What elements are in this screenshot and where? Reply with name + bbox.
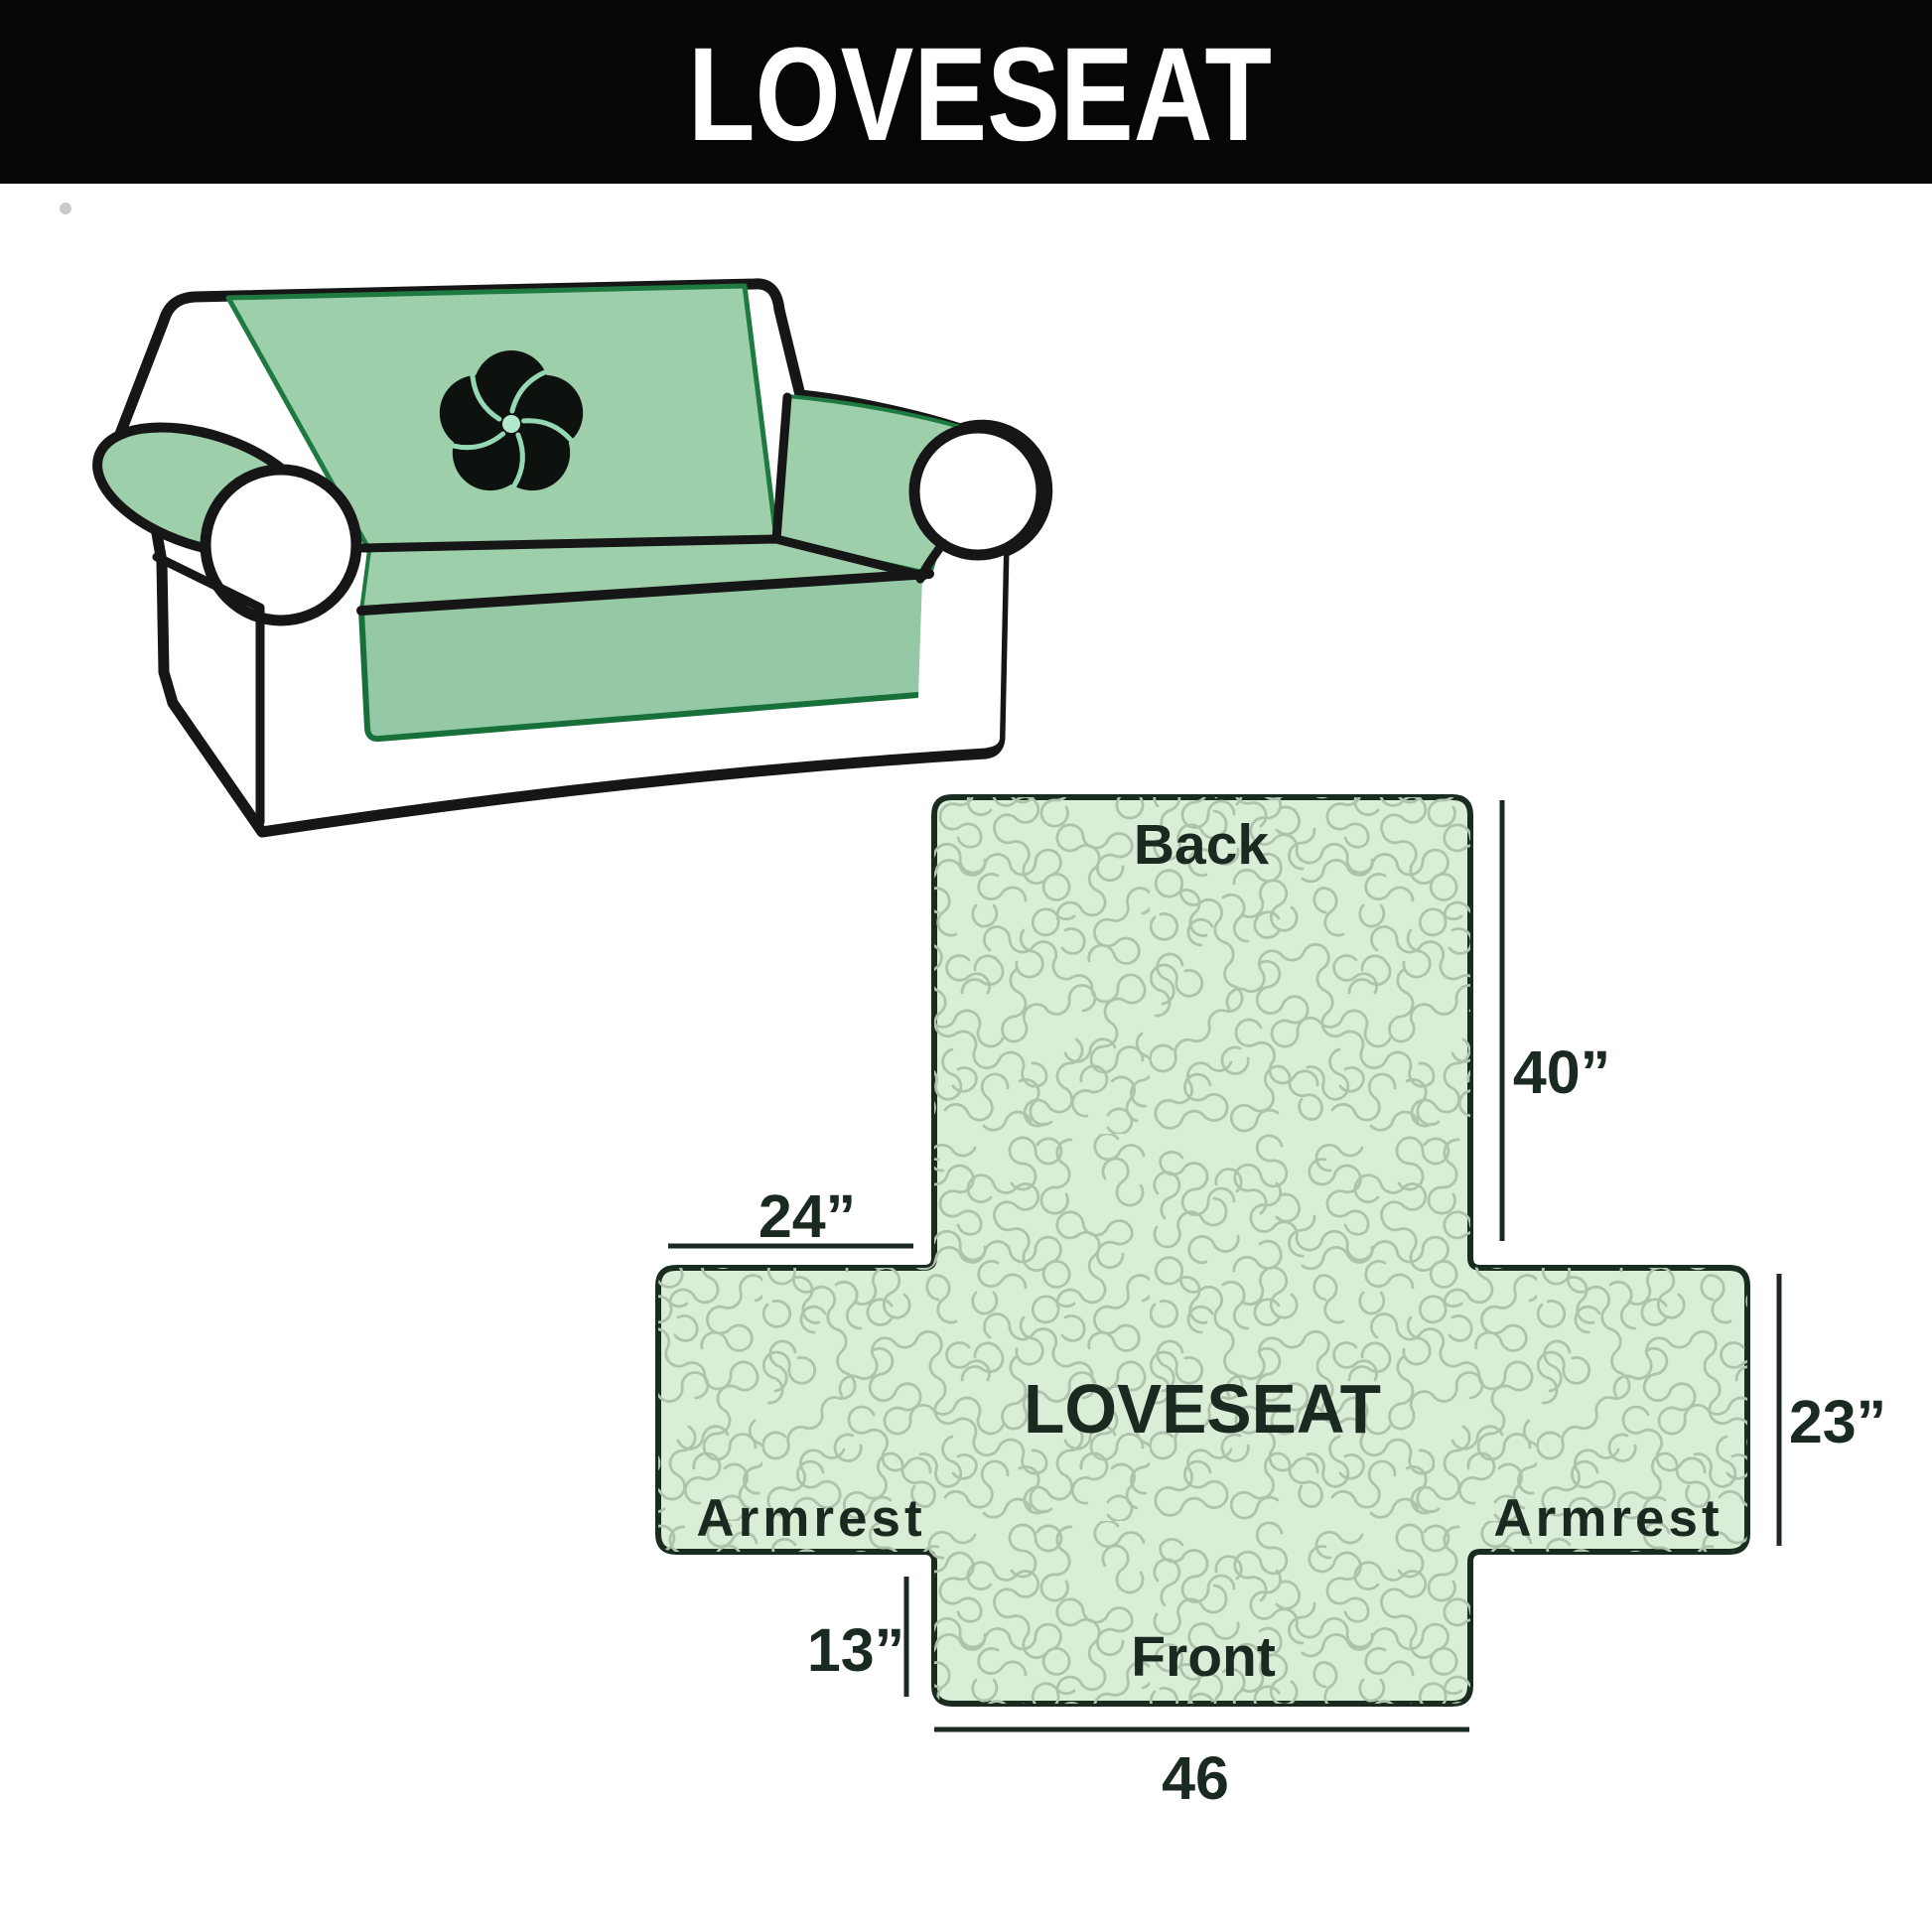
svg-text:Armrest: Armrest: [696, 1489, 925, 1548]
svg-text:LOVESEAT: LOVESEAT: [688, 21, 1272, 169]
svg-text:Front: Front: [1131, 1625, 1276, 1689]
svg-text:13”: 13”: [807, 1616, 904, 1684]
svg-text:24”: 24”: [759, 1182, 856, 1250]
svg-text:LOVESEAT: LOVESEAT: [1024, 1370, 1381, 1448]
svg-text:40”: 40”: [1513, 1038, 1610, 1106]
svg-text:23”: 23”: [1789, 1388, 1886, 1455]
svg-text:Back: Back: [1134, 813, 1270, 877]
svg-text:Armrest: Armrest: [1493, 1489, 1723, 1548]
svg-text:46: 46: [1162, 1744, 1229, 1812]
